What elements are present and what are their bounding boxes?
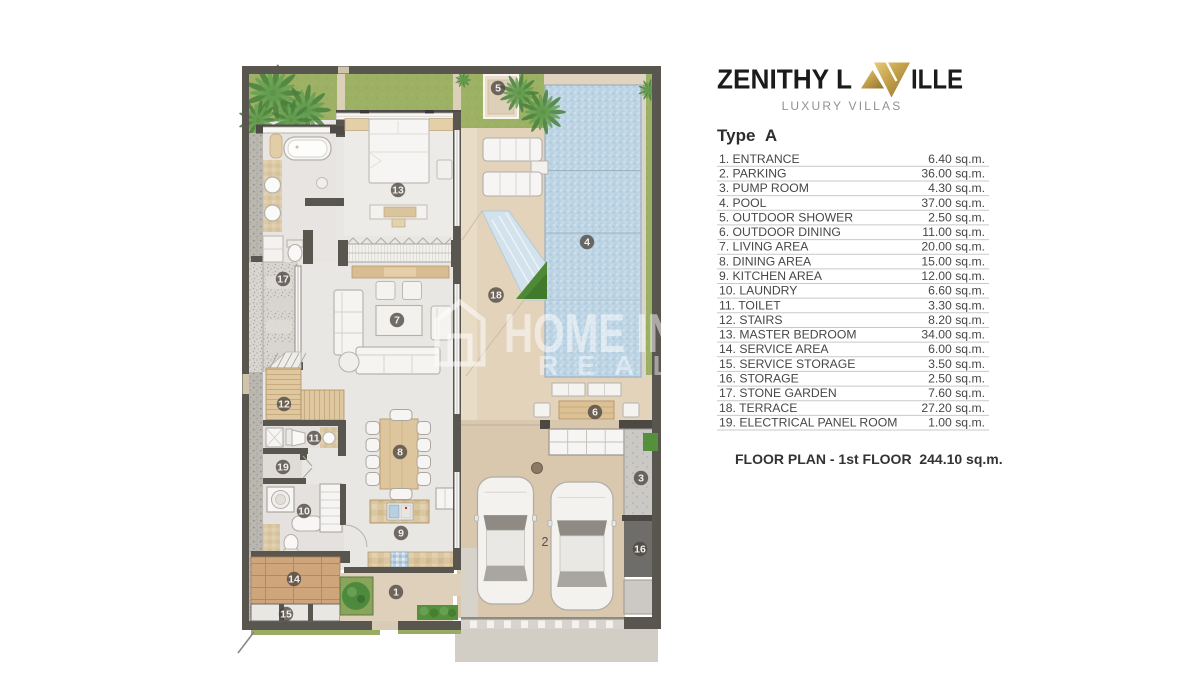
svg-text:FLOOR PLAN - 1st FLOOR 244.10: FLOOR PLAN - 1st FLOOR 244.10 sq.m. xyxy=(735,451,1003,467)
svg-text:3.50 sq.m.: 3.50 sq.m. xyxy=(928,357,985,371)
svg-text:2: 2 xyxy=(542,535,549,549)
svg-text:27.20 sq.m.: 27.20 sq.m. xyxy=(921,401,985,415)
svg-text:14. SERVICE AREA: 14. SERVICE AREA xyxy=(719,342,829,356)
svg-text:13: 13 xyxy=(392,185,404,197)
svg-text:1: 1 xyxy=(393,587,399,599)
svg-text:17. STONE GARDEN: 17. STONE GARDEN xyxy=(719,386,837,400)
svg-text:7.60 sq.m.: 7.60 sq.m. xyxy=(928,386,985,400)
svg-text:11.00 sq.m.: 11.00 sq.m. xyxy=(922,225,985,239)
svg-text:8: 8 xyxy=(397,447,403,459)
svg-text:11: 11 xyxy=(308,433,319,445)
svg-text:12: 12 xyxy=(278,399,290,411)
svg-text:20.00 sq.m.: 20.00 sq.m. xyxy=(921,240,985,254)
svg-text:7: 7 xyxy=(394,315,400,327)
svg-text:Type A: Type A xyxy=(717,126,777,145)
svg-text:2.50 sq.m.: 2.50 sq.m. xyxy=(928,210,985,224)
svg-text:ZENITHY L: ZENITHY L xyxy=(717,64,852,95)
svg-text:34.00 sq.m.: 34.00 sq.m. xyxy=(921,328,985,342)
svg-text:3.30 sq.m.: 3.30 sq.m. xyxy=(928,298,985,312)
svg-text:15. SERVICE STORAGE: 15. SERVICE STORAGE xyxy=(719,357,855,371)
svg-text:3. PUMP ROOM: 3. PUMP ROOM xyxy=(719,181,809,195)
svg-text:8. DINING AREA: 8. DINING AREA xyxy=(719,254,812,268)
svg-text:ILLE: ILLE xyxy=(911,64,963,95)
svg-text:15: 15 xyxy=(280,609,292,621)
svg-text:3: 3 xyxy=(638,473,644,485)
svg-text:19. ELECTRICAL PANEL ROOM: 19. ELECTRICAL PANEL ROOM xyxy=(719,416,897,430)
svg-text:12. STAIRS: 12. STAIRS xyxy=(719,313,782,327)
svg-text:10: 10 xyxy=(298,506,310,518)
svg-text:6: 6 xyxy=(592,407,598,419)
svg-text:6. OUTDOOR DINING: 6. OUTDOOR DINING xyxy=(719,225,841,239)
svg-text:12.00 sq.m.: 12.00 sq.m. xyxy=(921,269,985,283)
svg-text:LUXURY VILLAS: LUXURY VILLAS xyxy=(782,99,903,113)
svg-text:2. PARKING: 2. PARKING xyxy=(719,167,787,181)
svg-text:19: 19 xyxy=(277,462,289,474)
svg-text:14: 14 xyxy=(288,574,300,586)
svg-text:13. MASTER BEDROOM: 13. MASTER BEDROOM xyxy=(719,328,856,342)
svg-text:6.60 sq.m.: 6.60 sq.m. xyxy=(928,284,985,298)
svg-text:5: 5 xyxy=(495,83,501,95)
svg-text:4.30 sq.m.: 4.30 sq.m. xyxy=(928,181,985,195)
svg-text:5. OUTDOOR SHOWER: 5. OUTDOOR SHOWER xyxy=(719,210,853,224)
svg-text:2.50 sq.m.: 2.50 sq.m. xyxy=(928,372,985,386)
svg-text:1. ENTRANCE: 1. ENTRANCE xyxy=(719,152,800,166)
svg-text:10. LAUNDRY: 10. LAUNDRY xyxy=(719,284,797,298)
svg-text:9. KITCHEN AREA: 9. KITCHEN AREA xyxy=(719,269,823,283)
svg-text:17: 17 xyxy=(277,274,289,286)
svg-text:18. TERRACE: 18. TERRACE xyxy=(719,401,797,415)
svg-text:8.20 sq.m.: 8.20 sq.m. xyxy=(928,313,985,327)
svg-text:4. POOL: 4. POOL xyxy=(719,196,767,210)
svg-text:4: 4 xyxy=(584,237,590,249)
svg-text:1.00 sq.m.: 1.00 sq.m. xyxy=(928,416,985,430)
svg-text:9: 9 xyxy=(398,528,404,540)
svg-text:6.40 sq.m.: 6.40 sq.m. xyxy=(928,152,985,166)
svg-text:18: 18 xyxy=(490,290,502,302)
svg-text:6.00 sq.m.: 6.00 sq.m. xyxy=(928,342,985,356)
svg-text:7. LIVING AREA: 7. LIVING AREA xyxy=(719,240,809,254)
svg-text:15.00 sq.m.: 15.00 sq.m. xyxy=(921,254,985,268)
svg-text:36.00 sq.m.: 36.00 sq.m. xyxy=(921,167,985,181)
svg-text:16. STORAGE: 16. STORAGE xyxy=(719,372,799,386)
svg-text:37.00 sq.m.: 37.00 sq.m. xyxy=(921,196,985,210)
svg-text:16: 16 xyxy=(634,544,646,556)
svg-text:11. TOILET: 11. TOILET xyxy=(719,298,781,312)
